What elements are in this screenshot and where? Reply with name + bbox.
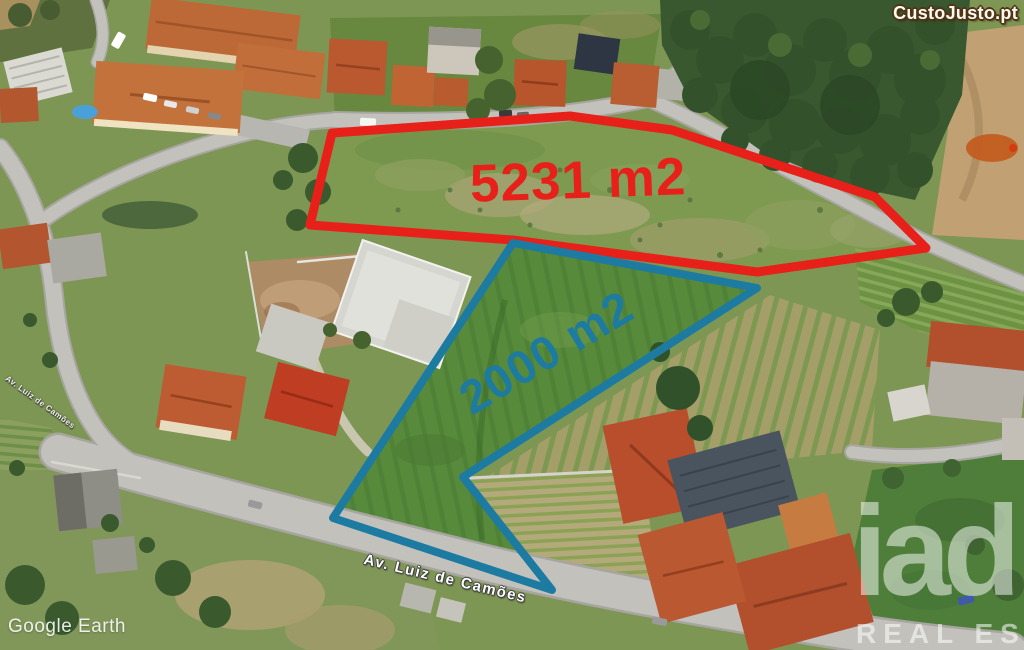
custojusto-watermark: CustoJusto.pt	[893, 3, 1018, 24]
listing-aerial-image: 5231 m2 2000 m2 CustoJusto.pt Av. Luiz d…	[0, 0, 1024, 650]
google-earth-credit: Google Earth	[8, 616, 126, 638]
iad-logo: iad	[852, 488, 1013, 616]
iad-tagline: REAL ESTATE	[856, 618, 1024, 650]
parcel-area-label-large: 5231 m2	[469, 146, 687, 215]
